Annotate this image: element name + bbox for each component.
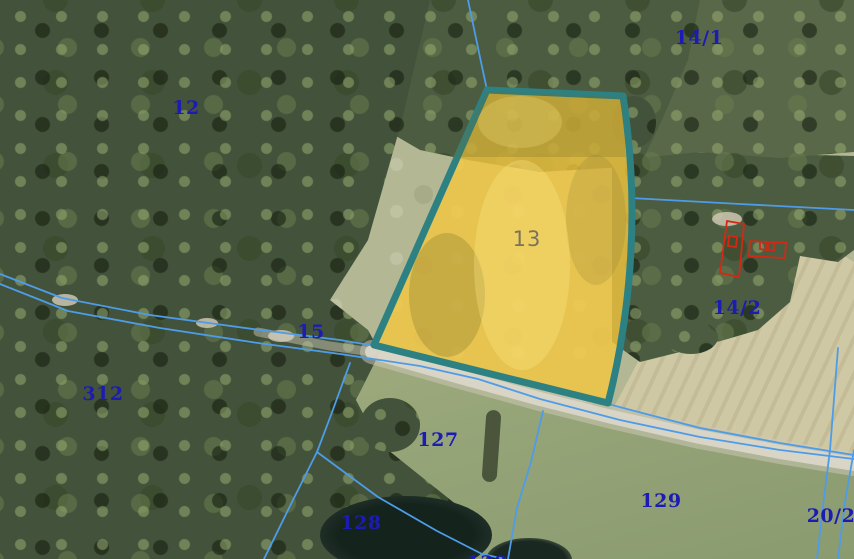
parcel-label-15: 15 <box>297 321 324 343</box>
map-canvas[interactable]: 14/1121314/21531212712812920/2130 <box>0 0 854 559</box>
parcel-label-14-2: 14/2 <box>713 297 762 319</box>
selected-parcel-label: 13 <box>513 227 542 251</box>
parcel-label-20-2: 20/2 <box>807 505 854 527</box>
parcel-label-12: 12 <box>172 97 199 119</box>
parcel-label-14-1: 14/1 <box>675 27 724 49</box>
parcel-label-127: 127 <box>417 429 458 451</box>
parcel-labels-layer: 14/1121314/21531212712812920/2130 <box>0 0 854 559</box>
parcel-label-128: 128 <box>340 512 381 534</box>
parcel-label-129: 129 <box>640 490 681 512</box>
parcel-label-312: 312 <box>82 383 123 405</box>
parcel-label-130: 130 <box>466 552 507 559</box>
